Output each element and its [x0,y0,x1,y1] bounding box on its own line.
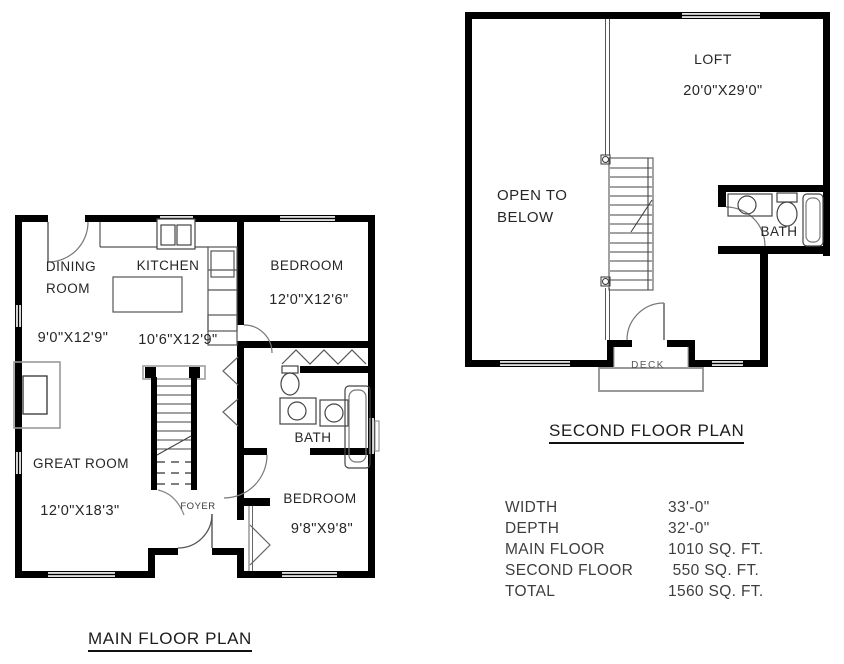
bedroom1-dims: 12'0"X12'6" [269,292,348,308]
kitchen-counters [100,219,237,345]
main-floor-plan-title: MAIN FLOOR PLAN [88,629,252,652]
dining-room-dims: 9'0"X12'9" [38,330,109,346]
loft-dims: 20'0"X29'0" [683,83,762,99]
stats-label: SECOND FLOOR [505,562,668,580]
stats-row-main-floor: MAIN FLOOR 1010 SQ. FT. [505,539,764,560]
stats-table: WIDTH 33'-0" DEPTH 32'-0" MAIN FLOOR 101… [505,497,764,602]
second-bath-label: BATH [760,224,797,239]
main-bath-label: BATH [294,430,331,445]
second-floor-labels: LOFT 20'0"X29'0" OPEN TO BELOW BATH DECK [497,51,798,371]
bedroom1-label: BEDROOM [270,258,343,273]
deck-label: DECK [631,360,665,371]
deck-door [627,303,664,340]
stats-label: WIDTH [505,499,668,517]
stats-label: DEPTH [505,520,668,538]
stats-value: 550 SQ. FT. [668,562,759,580]
dining-room-label-line1: DINING [46,259,96,274]
open-to-below-line1: OPEN TO [497,187,567,204]
foyer-label: FOYER [180,501,215,512]
open-to-below-line2: BELOW [497,209,554,226]
main-floor-plan: DINING ROOM 9'0"X12'9" KITCHEN 10'6"X12'… [14,215,379,578]
loft-label: LOFT [694,51,732,67]
great-room-label: GREAT ROOM [33,456,129,471]
second-floor-stairs [609,158,653,290]
main-stairs [143,366,205,490]
bedroom2-dims: 9'8"X9'8" [291,521,353,537]
dining-entry-door [48,215,88,262]
floor-plan-document: DINING ROOM 9'0"X12'9" KITCHEN 10'6"X12'… [0,0,844,664]
stats-row-depth: DEPTH 32'-0" [505,518,764,539]
second-floor-plan-title: SECOND FLOOR PLAN [549,421,744,444]
stats-row-width: WIDTH 33'-0" [505,497,764,518]
bedroom2-label: BEDROOM [283,491,356,506]
stats-label: MAIN FLOOR [505,541,668,559]
dining-room-label-line2: ROOM [46,281,90,296]
stats-value: 33'-0" [668,499,710,517]
great-room-dims: 12'0"X18'3" [40,503,119,519]
kitchen-dims: 10'6"X12'9" [138,332,217,348]
stats-label: TOTAL [505,583,668,601]
kitchen-label: KITCHEN [137,258,200,273]
second-bath-door [726,207,765,246]
stats-value: 1010 SQ. FT. [668,541,764,559]
stats-value: 32'-0" [668,520,710,538]
stats-value: 1560 SQ. FT. [668,583,764,601]
stats-row-second-floor: SECOND FLOOR 550 SQ. FT. [505,560,764,581]
stats-row-total: TOTAL 1560 SQ. FT. [505,581,764,602]
second-floor-plan: LOFT 20'0"X29'0" OPEN TO BELOW BATH DECK [465,12,830,391]
